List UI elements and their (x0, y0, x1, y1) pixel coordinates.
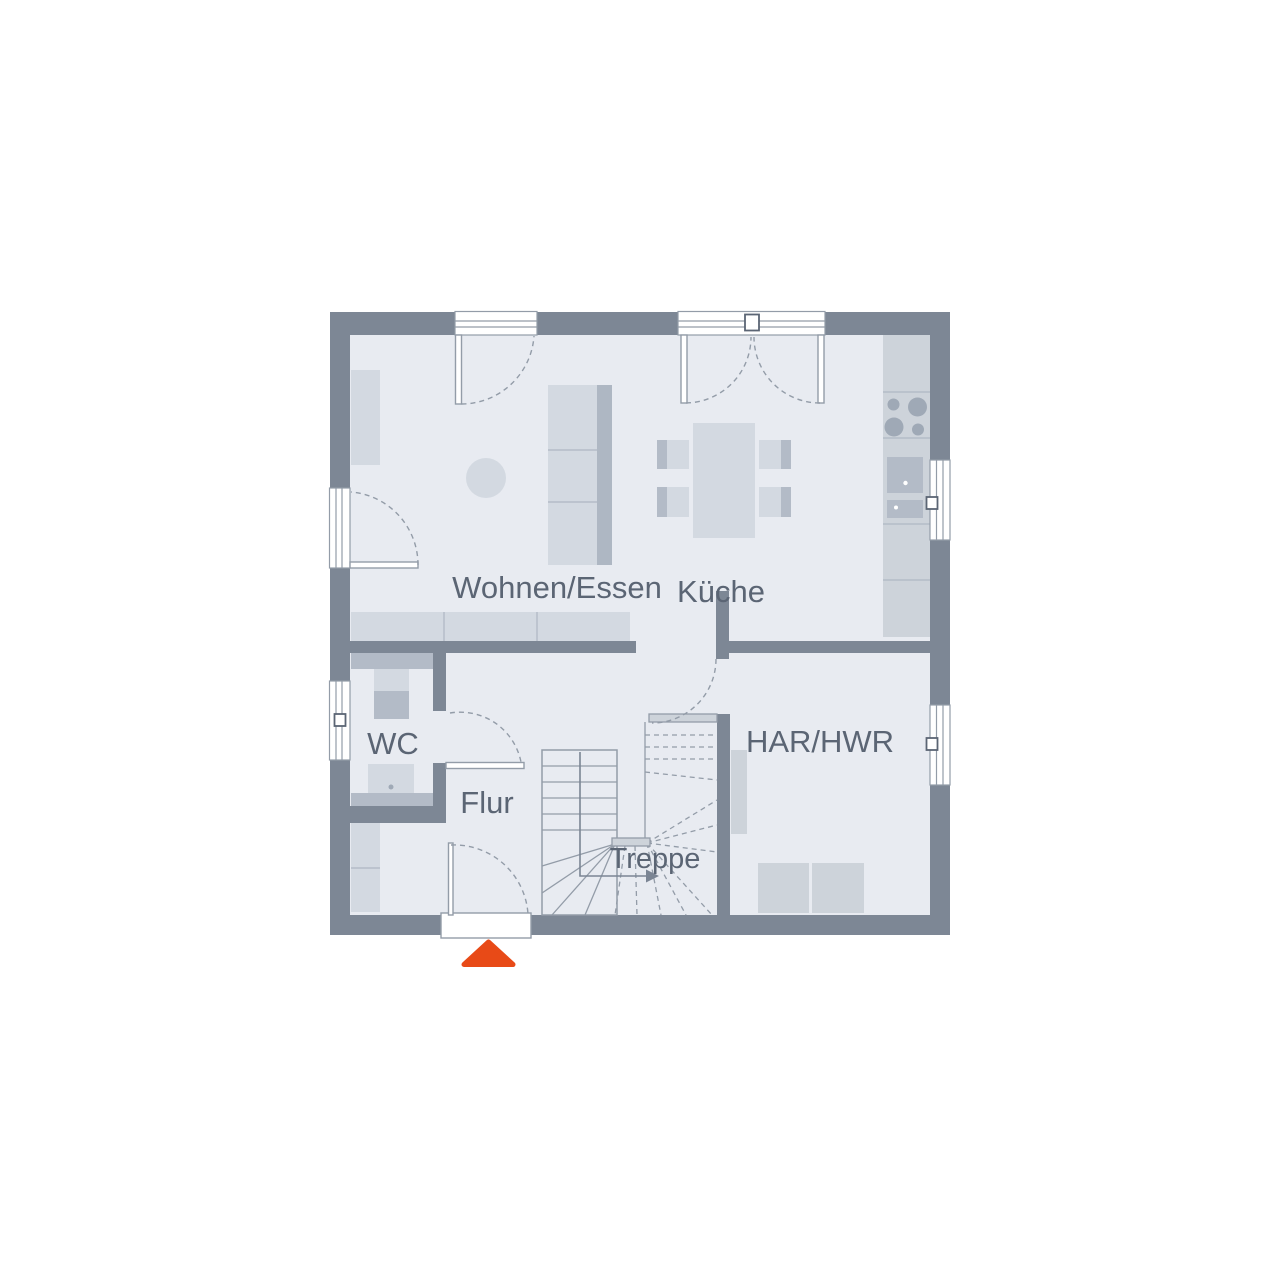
entrance-threshold (441, 913, 531, 938)
stair-top-edge (649, 714, 717, 722)
entrance-arrow-icon (464, 942, 513, 965)
kitchen-furniture (883, 335, 930, 637)
wall-living-hall (350, 641, 636, 653)
shelf-unit (548, 385, 612, 565)
wall-stair-har (717, 714, 730, 915)
utility-cabinet (731, 750, 747, 834)
sofa (351, 612, 630, 641)
window-wc (330, 681, 351, 760)
door-leaf (681, 335, 687, 403)
room-label-wohnen-essen: Wohnen/Essen (452, 570, 662, 605)
sideboard (351, 370, 380, 465)
room-label-har-hwr: HAR/HWR (746, 724, 894, 759)
window-handle-icon (335, 714, 346, 726)
chair (657, 440, 689, 469)
dryer (812, 863, 864, 913)
chair (657, 487, 689, 517)
door-leaf (818, 335, 824, 403)
wall-wc-bottom (350, 806, 446, 823)
washer (758, 863, 809, 913)
window-handle-icon (927, 497, 938, 509)
floor-plan-svg: Wohnen/Essen Küche WC Flur Treppe HAR/HW… (0, 0, 1280, 1280)
room-label-flur: Flur (460, 785, 513, 820)
room-label-treppe: Treppe (610, 843, 701, 875)
round-table (466, 458, 506, 498)
room-label-kueche: Küche (677, 574, 765, 609)
hall-wardrobe (351, 823, 380, 912)
door-leaf (449, 843, 454, 915)
wall-wc-stub-bottom (433, 763, 446, 806)
chair (759, 487, 791, 517)
wall-wc-stub-top (433, 653, 446, 711)
door-leaf (456, 335, 462, 404)
door-handle-icon (745, 315, 759, 331)
kitchen-sink (887, 457, 923, 518)
floor-plan-page: Wohnen/Essen Küche WC Flur Treppe HAR/HW… (0, 0, 1280, 1280)
window-handle-icon (927, 738, 938, 750)
window-utility (927, 705, 951, 785)
window-kitchen (927, 460, 951, 540)
door-leaf (350, 562, 418, 568)
chair (759, 440, 791, 469)
dining-table (693, 423, 755, 538)
room-label-wc: WC (367, 726, 419, 761)
wall-kitchen-har (729, 641, 930, 653)
